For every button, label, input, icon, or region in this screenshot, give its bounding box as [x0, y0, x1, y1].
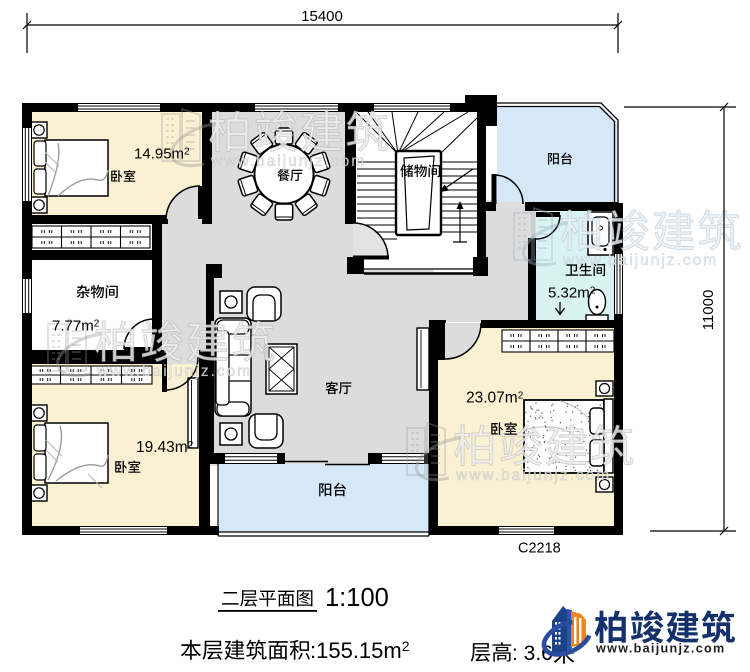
svg-text:www.baijunjz.com: www.baijunjz.com — [595, 642, 726, 656]
svg-text:5.32m2: 5.32m2 — [548, 285, 596, 302]
svg-text:1:100: 1:100 — [325, 584, 389, 612]
svg-text:14.95m2: 14.95m2 — [134, 146, 190, 163]
svg-text:19.43m2: 19.43m2 — [136, 439, 194, 456]
svg-text:C2218: C2218 — [518, 541, 561, 557]
svg-text:11000: 11000 — [700, 290, 717, 331]
svg-text::155.15m2: :155.15m2 — [310, 638, 410, 663]
svg-text:15400: 15400 — [301, 8, 343, 25]
svg-text:7.77m2: 7.77m2 — [52, 318, 100, 335]
svg-text:23.07m2: 23.07m2 — [466, 390, 524, 407]
